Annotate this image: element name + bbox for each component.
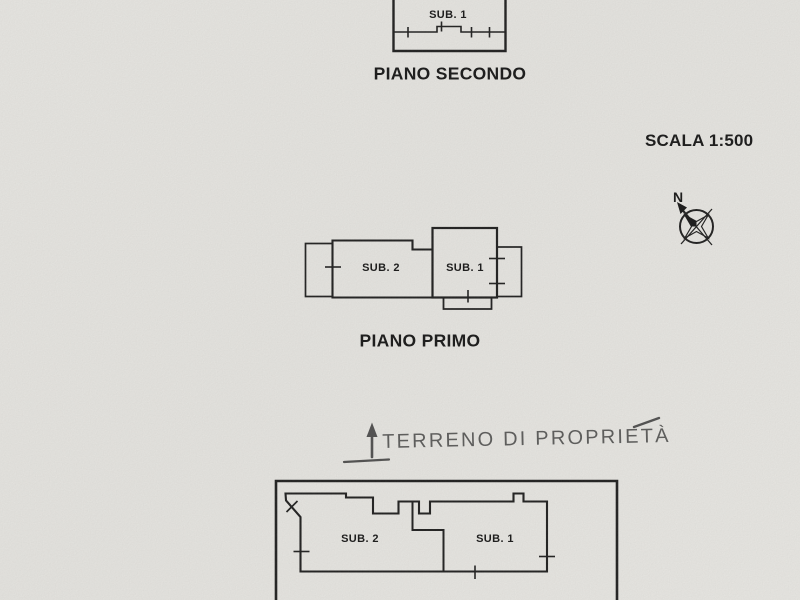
pencil-arrowhead (367, 423, 378, 438)
compass-star-nw-fill (685, 215, 697, 227)
caption-piano-secondo: PIANO SECONDO (374, 64, 527, 85)
unit-label-primo-sub1: SUB. 1 (446, 262, 484, 274)
balcony-right (497, 247, 522, 297)
unit-label-secondo-sub1: SUB. 1 (429, 9, 467, 21)
unit-label-primo-sub2: SUB. 2 (362, 262, 400, 274)
caption-piano-primo: PIANO PRIMO (360, 331, 481, 352)
scale-label: SCALA 1:500 (645, 131, 753, 151)
compass-north-label: N (673, 189, 683, 205)
property-boundary (276, 481, 617, 600)
plan-piano-terra (276, 481, 617, 600)
unit-label-terra-sub2: SUB. 2 (341, 533, 379, 545)
building-outline (394, 0, 506, 51)
unit-divider (413, 502, 444, 572)
scanned-floor-plan-document: SUB. 1 PIANO SECONDO SCALA 1:500 N SUB. … (0, 0, 800, 600)
unit-label-terra-sub1: SUB. 1 (476, 533, 514, 545)
plan-linework (0, 0, 800, 600)
compass-rose-icon (677, 202, 713, 245)
balcony-left (306, 244, 333, 297)
plan-piano-secondo (394, 0, 506, 51)
plan-piano-primo (306, 228, 522, 309)
pencil-underline (344, 460, 389, 463)
